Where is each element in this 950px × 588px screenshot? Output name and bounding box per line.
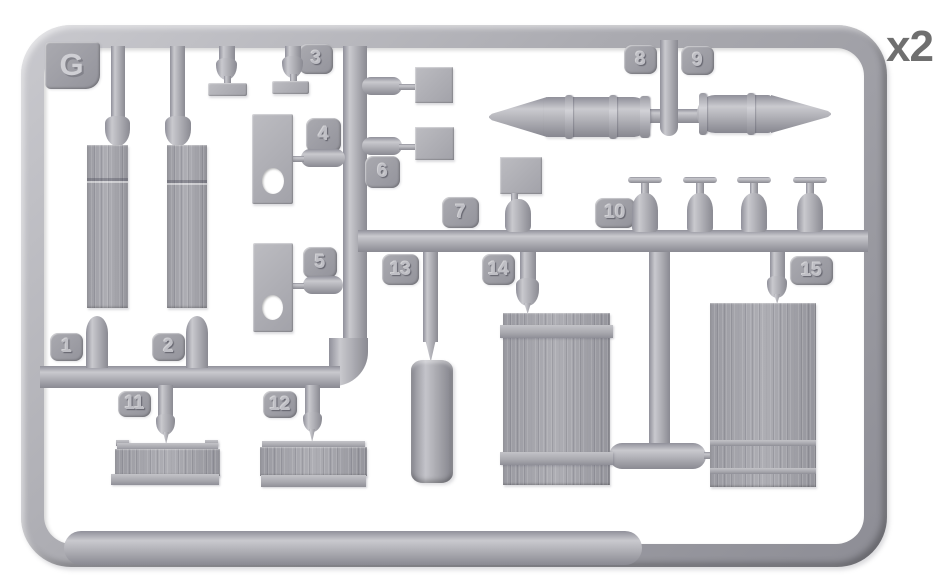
part-9-shell-band [747, 93, 755, 135]
part-14-batten-bottom [500, 452, 613, 465]
part-3a-strip [208, 83, 247, 96]
gate-bulb-part-7 [505, 199, 531, 232]
part-14-batten-top [500, 325, 613, 338]
part-label-11: 11 [118, 391, 151, 417]
part-10c-bottle [741, 193, 767, 232]
part-1-plank [87, 145, 128, 308]
part-8-shell-body [544, 97, 651, 137]
part-label-4: 4 [306, 118, 341, 152]
part-6a-square [415, 67, 453, 103]
sprue-letter-plate: G [45, 42, 100, 89]
part-15-ridge-upper [710, 440, 816, 446]
part-8-shell-band-rear [609, 95, 617, 139]
part-label-15: 15 [790, 256, 833, 285]
runner-horizontal-lower-left [40, 366, 340, 388]
gate-plank-2-to-runner [186, 316, 208, 368]
quantity-label: x2 [886, 22, 946, 72]
part-label-9: 9 [681, 46, 714, 75]
part-15-ridge-lower [710, 468, 816, 474]
part-label-7: 7 [442, 197, 479, 228]
part-label-5: 5 [303, 247, 337, 278]
runner-horizontal-middle [358, 230, 868, 252]
part-1-plank-groove-highlight [87, 181, 128, 183]
part-12-bottom-lip [261, 475, 366, 487]
feed-rod-part-13 [423, 252, 438, 342]
part-label-2: 2 [152, 333, 185, 361]
part-13-drum [411, 360, 453, 483]
part-2-plank [167, 145, 207, 308]
part-5-hole [262, 295, 283, 320]
part-10b-bottle [687, 193, 713, 232]
gate-bulb-part-2 [165, 116, 191, 146]
gate-rod-part-6a [399, 84, 416, 90]
part-15-panel [710, 303, 816, 487]
part-label-13: 13 [382, 254, 419, 285]
part-9-shell-body [697, 95, 772, 133]
part-11-plank [115, 449, 220, 476]
part-label-10: 10 [595, 198, 635, 228]
part-label-3: 3 [299, 44, 333, 74]
part-10d-bottle [797, 193, 823, 232]
sprue-bottom-runner-sleeve [64, 531, 642, 565]
part-2-plank-groove-highlight [167, 183, 207, 185]
gate-rod-part-6b [399, 144, 416, 150]
part-label-6: 6 [365, 156, 400, 188]
part-6b-square [415, 127, 454, 160]
gate-bullet-part-4 [301, 149, 345, 167]
sprue-photo: G 1 2 3 4 5 6 7 8 9 10 11 12 13 14 15 [0, 0, 950, 588]
part-8-shell-band-front [565, 95, 573, 139]
part-10a-bottle [632, 193, 658, 232]
part-3b-strip [272, 81, 309, 94]
gate-rod-part-5 [292, 283, 304, 289]
gate-bullet-part-6a [362, 77, 402, 95]
gate-plank-1-to-runner [86, 316, 108, 368]
part-11-bottom-lip [111, 474, 219, 485]
gate-bullet-part-6b [362, 137, 402, 155]
part-8-shell-base-ring [640, 96, 650, 138]
part-9-shell-base-ring [699, 93, 707, 135]
part-7-square [500, 157, 542, 194]
runner-t-bar [609, 443, 706, 469]
part-label-8: 8 [624, 45, 657, 74]
part-4-hole [262, 168, 284, 194]
part-label-14: 14 [482, 254, 515, 285]
runner-vertical-right [649, 252, 670, 450]
feed-rod-part-1 [111, 46, 125, 122]
part-label-1: 1 [50, 333, 83, 361]
part-12-plank [260, 447, 367, 476]
part-label-12: 12 [263, 391, 297, 418]
feed-rod-part-2 [170, 46, 185, 122]
gate-bullet-part-5 [303, 276, 343, 294]
feed-rod-shells [660, 40, 678, 136]
